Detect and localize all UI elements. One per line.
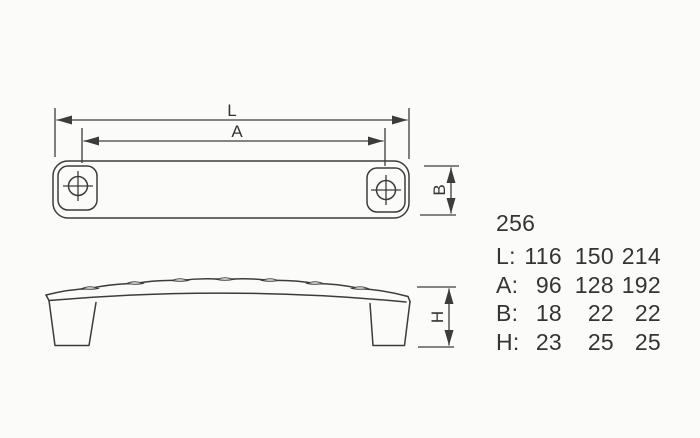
- dimension-H: H: [417, 287, 456, 347]
- spec-value: 25: [562, 328, 614, 357]
- side-view: H: [46, 278, 456, 347]
- spec-value: 116: [523, 242, 562, 271]
- handle-base-outline: [53, 161, 409, 218]
- grip-bottom-edge: [49, 293, 406, 302]
- foot-right: [370, 302, 410, 346]
- dimension-label-B: B: [430, 184, 449, 195]
- spec-table: 256 L: 116 150 214 A: 96 128 192 B: 18 2…: [496, 211, 661, 356]
- dimension-label-A: A: [231, 122, 243, 141]
- spec-value: 23: [523, 328, 562, 357]
- drawing-sheet: L A B: [0, 0, 700, 438]
- spec-row-label: H:: [496, 328, 523, 357]
- dimension-B: B: [420, 166, 459, 215]
- model-number: 256: [496, 211, 661, 242]
- grip-right-tip: [408, 297, 410, 302]
- spec-row-label: B:: [496, 299, 523, 328]
- spec-row-A: A: 96 128 192: [496, 271, 661, 300]
- top-view: L A B: [53, 101, 459, 218]
- spec-row-label: A:: [496, 271, 523, 300]
- spec-value: 22: [562, 299, 614, 328]
- dimension-A: A: [82, 122, 385, 166]
- spec-row-H: H: 23 25 25: [496, 328, 661, 357]
- spec-value: 96: [523, 271, 562, 300]
- spec-row-L: L: 116 150 214: [496, 242, 661, 271]
- spec-value: 25: [614, 328, 661, 357]
- spec-value: 22: [614, 299, 661, 328]
- spec-value: 128: [562, 271, 614, 300]
- dimension-label-L: L: [227, 101, 236, 120]
- grip-left-tip: [46, 295, 49, 301]
- spec-value: 150: [562, 242, 614, 271]
- spec-row-B: B: 18 22 22: [496, 299, 661, 328]
- foot-left: [49, 301, 96, 346]
- spec-value: 214: [614, 242, 661, 271]
- dimension-label-H: H: [428, 311, 447, 323]
- spec-value: 18: [523, 299, 562, 328]
- spec-value: 192: [614, 271, 661, 300]
- screw-hole-crosshair-left: [63, 171, 93, 201]
- spec-row-label: L:: [496, 242, 523, 271]
- screw-hole-crosshair-right: [371, 175, 401, 205]
